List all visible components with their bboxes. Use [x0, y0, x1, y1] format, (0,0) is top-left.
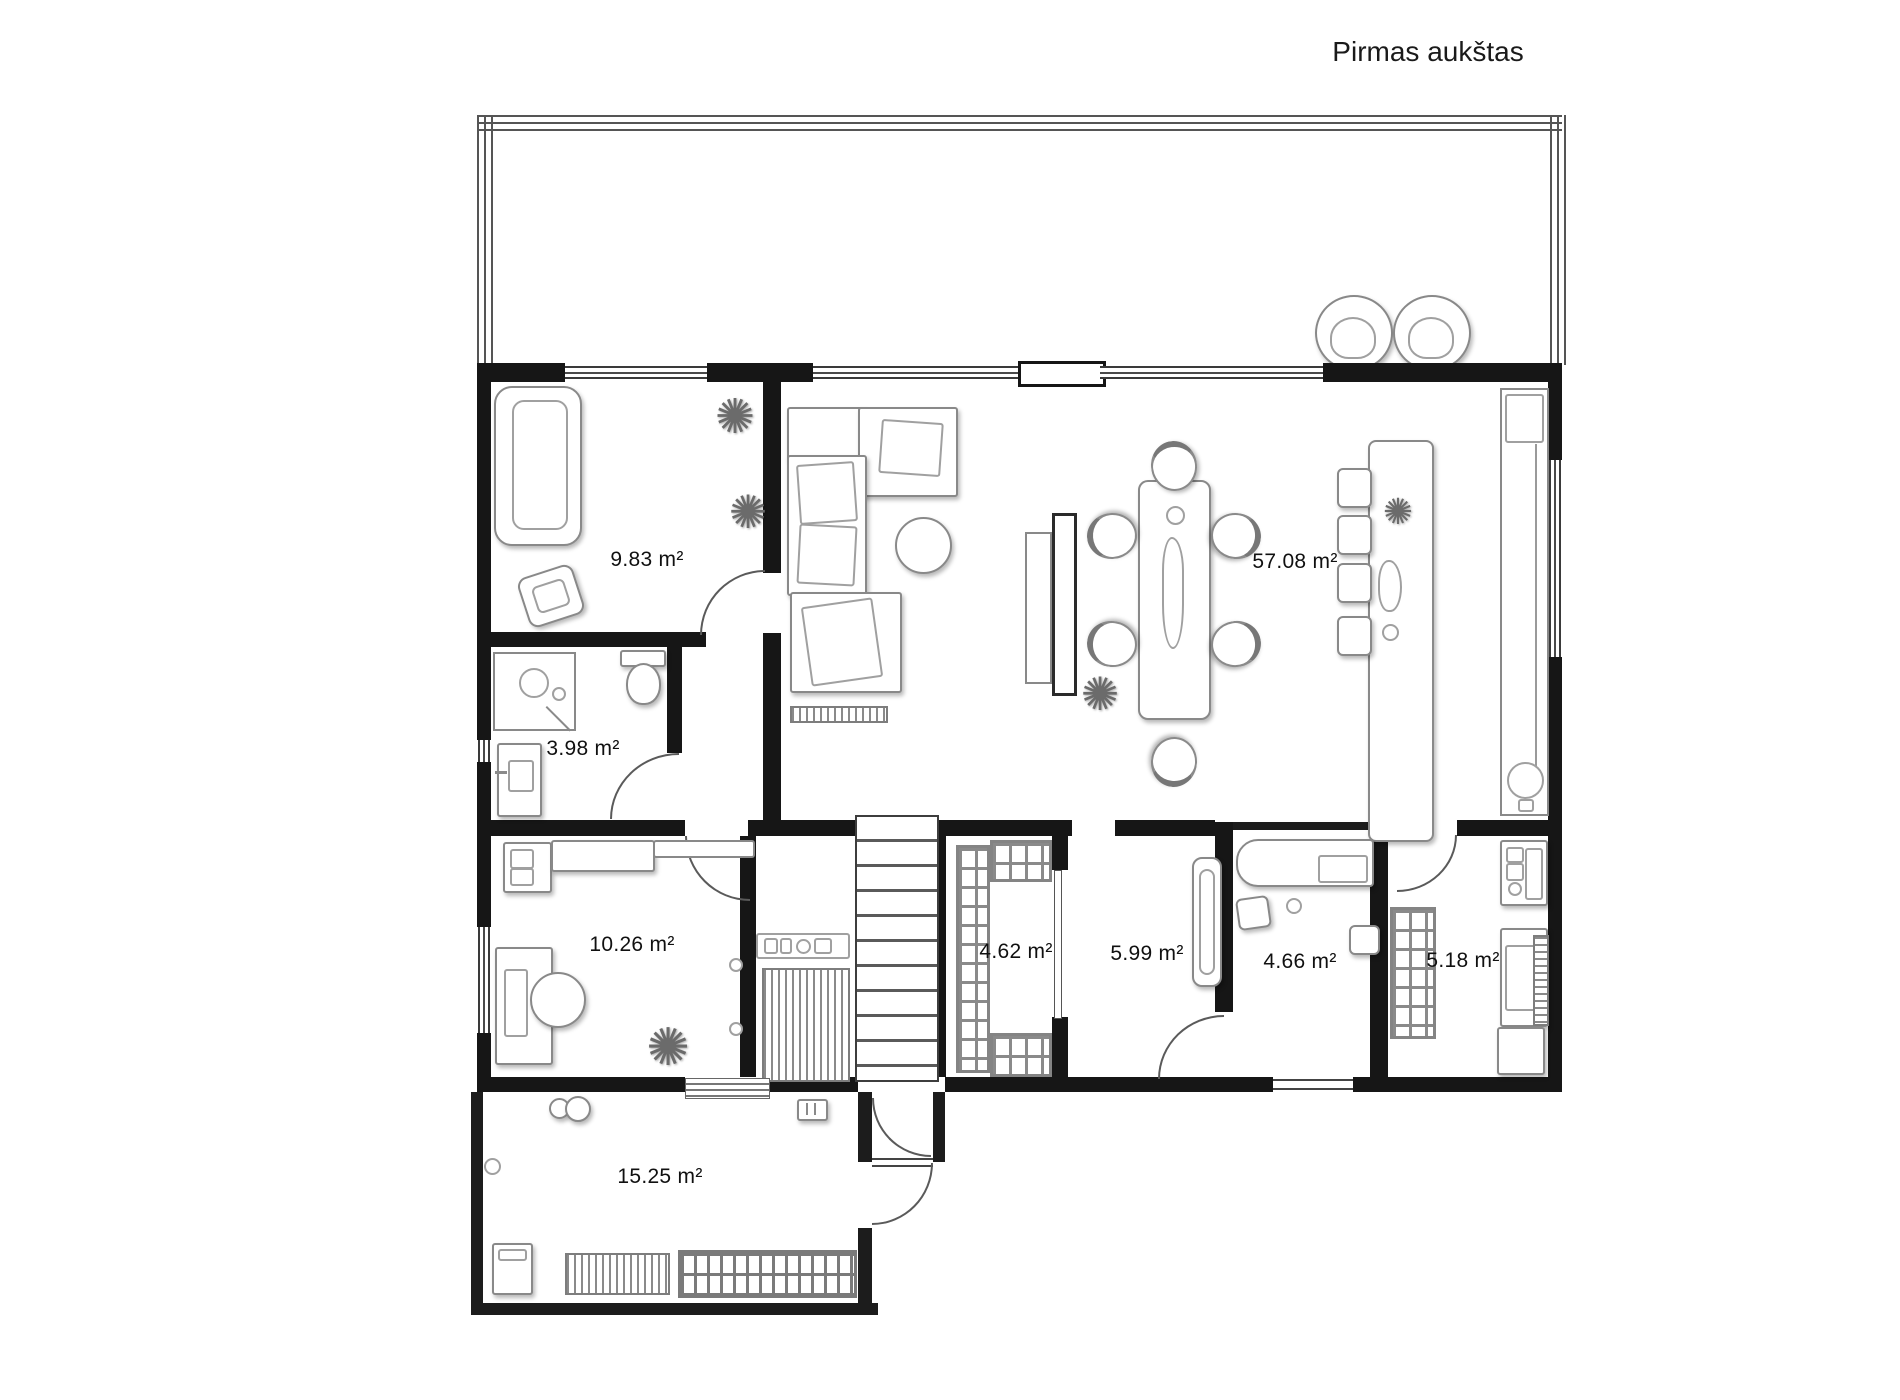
faucet-icon — [495, 771, 507, 774]
kitchen-counter-icon — [1500, 388, 1549, 816]
sofa-cushion — [796, 524, 857, 587]
box-lid — [498, 1249, 527, 1261]
pantry-shelf — [1390, 907, 1436, 1039]
bar-stool-icon — [1337, 515, 1372, 555]
room-label-bathroom: 3.98 m² — [546, 737, 619, 761]
wall — [945, 1077, 1273, 1092]
shelf-icon — [653, 840, 755, 858]
faucet-icon — [1518, 799, 1534, 812]
wall — [1457, 820, 1550, 836]
storage-shelf-bottom — [990, 1033, 1052, 1077]
desk-monitor — [504, 969, 528, 1037]
bar-stool-icon — [1337, 563, 1372, 603]
appliance-icon — [1505, 394, 1544, 443]
wall — [477, 1077, 685, 1092]
sliding-door-panel — [1018, 361, 1106, 387]
wall — [1052, 1017, 1068, 1077]
table-runner-decor — [1162, 537, 1184, 649]
door-arc-hallway — [1158, 1015, 1224, 1079]
sofa-bed — [494, 386, 582, 546]
wall — [1323, 363, 1562, 382]
side-table — [1497, 1027, 1545, 1075]
door-threshold — [1273, 1079, 1353, 1090]
wall — [748, 820, 855, 836]
utility-cabinet — [1236, 839, 1374, 887]
door-arc-bedroom — [700, 570, 765, 635]
sofa-end-module — [790, 592, 902, 693]
wall — [477, 820, 685, 836]
window — [565, 366, 707, 379]
closet-item — [814, 938, 832, 954]
workbench-icon — [565, 1253, 670, 1295]
appliance-knob — [1506, 847, 1524, 863]
hall-bench — [1192, 857, 1222, 987]
door-arc-entrance — [872, 1098, 931, 1157]
shelving-rack-icon — [678, 1250, 857, 1298]
terrace-railing-top — [477, 115, 1562, 131]
room-label-living: 57.08 m² — [1252, 550, 1337, 574]
wall-hook-icon — [729, 958, 743, 972]
wall — [1115, 820, 1215, 836]
wall — [1052, 836, 1068, 870]
sofa-cushion — [796, 461, 858, 525]
sideboard-icon — [551, 840, 655, 872]
sofa-corner-module — [787, 407, 866, 461]
wall — [477, 363, 491, 740]
wall — [1233, 822, 1388, 830]
window — [1100, 366, 1323, 379]
counter-edge — [1535, 444, 1537, 794]
dining-chair-icon — [1085, 511, 1139, 561]
vent-icon — [797, 1099, 828, 1121]
storage-box — [492, 1243, 533, 1295]
room-label-pantry: 5.18 m² — [1426, 949, 1499, 973]
bench-seat — [1199, 869, 1215, 975]
stool-icon — [1235, 895, 1272, 931]
door-arc-porch — [872, 1163, 933, 1225]
wall — [1548, 657, 1562, 1092]
window — [478, 927, 490, 1033]
equipment-icon — [565, 1096, 591, 1122]
window — [478, 740, 490, 762]
plant-icon: ✺ — [1081, 671, 1120, 717]
wall — [471, 1303, 878, 1315]
wall — [763, 633, 781, 836]
cabinet-door — [510, 868, 534, 886]
wall — [933, 1092, 945, 1162]
plant-icon: ✺ — [729, 489, 768, 535]
storage-shelf-top — [990, 840, 1052, 882]
door-arc-pantry — [1397, 835, 1457, 892]
drain-icon — [552, 687, 566, 701]
washbasin-icon — [497, 743, 542, 817]
sink-icon — [1507, 762, 1544, 799]
door-leaf-storage — [1054, 870, 1062, 1019]
vent-slat — [806, 1103, 808, 1115]
radiator-icon — [790, 706, 888, 723]
armchair-seat — [1408, 317, 1454, 359]
laundry-appliance-icon — [1500, 840, 1548, 906]
toilet-icon — [626, 663, 661, 705]
plant-icon: ✺ — [646, 1022, 690, 1074]
wall — [667, 647, 682, 753]
radiator-icon — [1533, 935, 1549, 1026]
sofa-cushion — [801, 597, 883, 686]
stair-lower-flight — [762, 968, 850, 1082]
armchair-seat — [1330, 317, 1376, 359]
page-title: Pirmas aukštas — [1332, 36, 1523, 68]
fixture-icon — [1286, 898, 1302, 914]
wall — [471, 1092, 483, 1315]
dining-chair-icon — [1084, 618, 1140, 671]
appliance-knob — [1506, 863, 1524, 881]
plant-icon: ✺ — [1383, 494, 1413, 530]
entry-steps — [685, 1078, 770, 1099]
dining-chair-icon — [1207, 617, 1264, 671]
appliance-door — [1525, 848, 1543, 900]
armchair-icon — [515, 562, 586, 629]
table-decor — [1166, 506, 1185, 525]
floor-plan: Pirmas aukštas — [0, 0, 1900, 1400]
closet-item — [796, 939, 811, 954]
island-decor — [1382, 624, 1399, 641]
room-label-bedroom: 9.83 m² — [610, 548, 683, 572]
sofa-bed-seat — [512, 400, 568, 530]
sofa-side-module — [787, 455, 867, 596]
terrace-railing-right — [1550, 115, 1566, 365]
armchair-seat — [531, 577, 572, 614]
terrace-railing-left — [477, 115, 493, 365]
office-chair-icon — [530, 972, 586, 1028]
wall — [1548, 363, 1562, 460]
sofa-chaise-module — [858, 407, 958, 497]
cabinet-door — [1318, 855, 1368, 883]
coffee-table-icon — [895, 517, 952, 574]
plant-icon: ✺ — [715, 394, 755, 442]
cabinet-door — [510, 849, 534, 869]
bar-stool-icon — [1337, 468, 1372, 508]
staircase — [855, 815, 939, 1082]
wall-hook-icon — [729, 1022, 743, 1036]
wall — [477, 762, 491, 927]
wall — [477, 632, 706, 647]
stool-icon — [1349, 925, 1380, 955]
room-label-utility: 4.66 m² — [1263, 950, 1336, 974]
room-label-garage: 15.25 m² — [617, 1165, 702, 1189]
room-label-hallway: 5.99 m² — [1110, 942, 1183, 966]
cabinet-icon — [503, 842, 552, 893]
room-label-storage: 4.62 m² — [979, 940, 1052, 964]
wall — [930, 820, 1072, 836]
basin — [508, 760, 534, 792]
terrace-armchair-icon — [1393, 295, 1471, 371]
shower-drain — [519, 668, 549, 698]
shower-corner-line — [546, 706, 571, 731]
sofa-cushion — [878, 419, 944, 477]
fixture-icon — [484, 1158, 501, 1175]
dining-chair-icon — [1149, 735, 1200, 790]
closet-item — [780, 938, 792, 954]
bar-stool-icon — [1337, 616, 1372, 656]
door-arc-bathroom — [610, 753, 679, 819]
wall — [858, 1228, 872, 1315]
closet-item — [764, 938, 778, 954]
island-decor — [1378, 560, 1402, 612]
wall — [707, 363, 813, 382]
window — [1549, 460, 1561, 657]
terrace-armchair-icon — [1315, 295, 1393, 371]
tv-icon — [1052, 513, 1077, 696]
dining-table-icon — [1138, 480, 1211, 720]
appliance-knob — [1508, 882, 1522, 896]
tv-bench — [1025, 532, 1052, 684]
wall — [858, 1092, 872, 1162]
window — [813, 366, 1018, 379]
wall — [763, 382, 781, 573]
vent-slat — [814, 1103, 816, 1115]
room-label-office: 10.26 m² — [589, 933, 674, 957]
